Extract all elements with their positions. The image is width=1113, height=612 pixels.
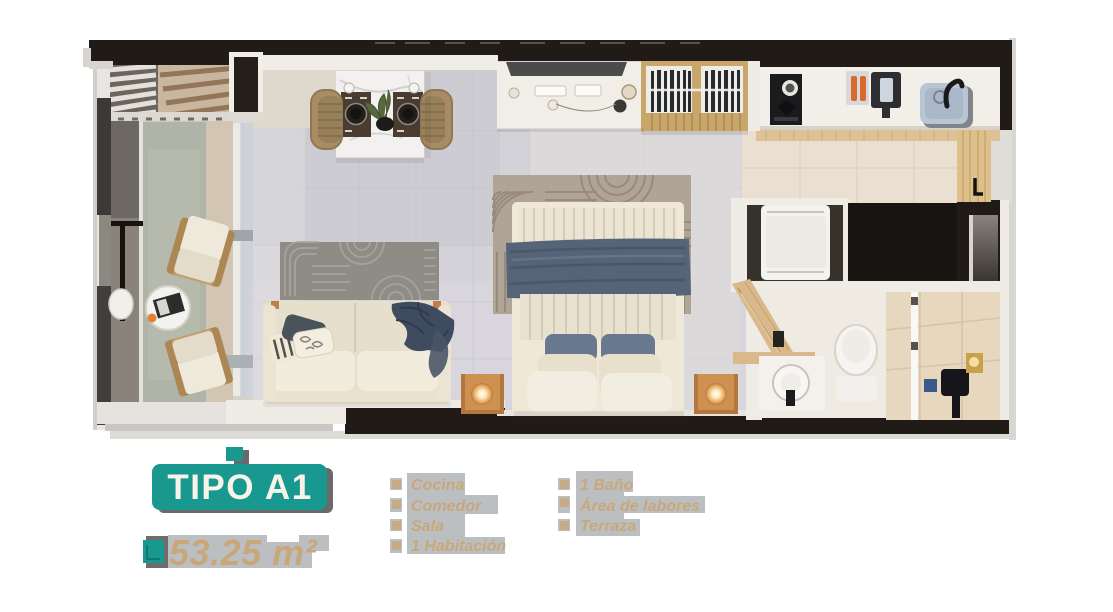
svg-text:Terraza: Terraza — [580, 518, 636, 535]
svg-text:Comedor: Comedor — [411, 498, 482, 515]
svg-text:53.25 m²: 53.25 m² — [169, 532, 318, 573]
svg-text:Sala: Sala — [411, 518, 444, 535]
svg-text:1 Habitación: 1 Habitación — [411, 538, 506, 555]
svg-text:Área de labores: Área de labores — [579, 496, 700, 515]
svg-text:1 Baño: 1 Baño — [580, 477, 634, 494]
svg-text:TIPO A1: TIPO A1 — [167, 468, 312, 507]
svg-text:Cocina: Cocina — [411, 477, 464, 494]
